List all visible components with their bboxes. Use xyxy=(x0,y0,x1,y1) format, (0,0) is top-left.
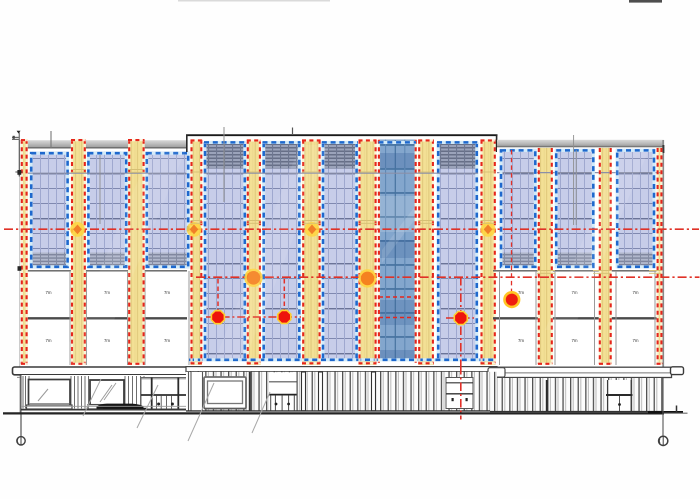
svg-text:7m: 7m xyxy=(632,338,638,343)
svg-text:7m: 7m xyxy=(632,290,638,295)
svg-text:7m: 7m xyxy=(164,338,170,343)
svg-text:7m: 7m xyxy=(518,338,524,343)
svg-text:7m: 7m xyxy=(45,290,51,295)
svg-text:7m: 7m xyxy=(518,290,524,295)
svg-text:7m: 7m xyxy=(45,338,51,343)
svg-text:7m: 7m xyxy=(164,290,170,295)
svg-text:7m: 7m xyxy=(571,338,577,343)
